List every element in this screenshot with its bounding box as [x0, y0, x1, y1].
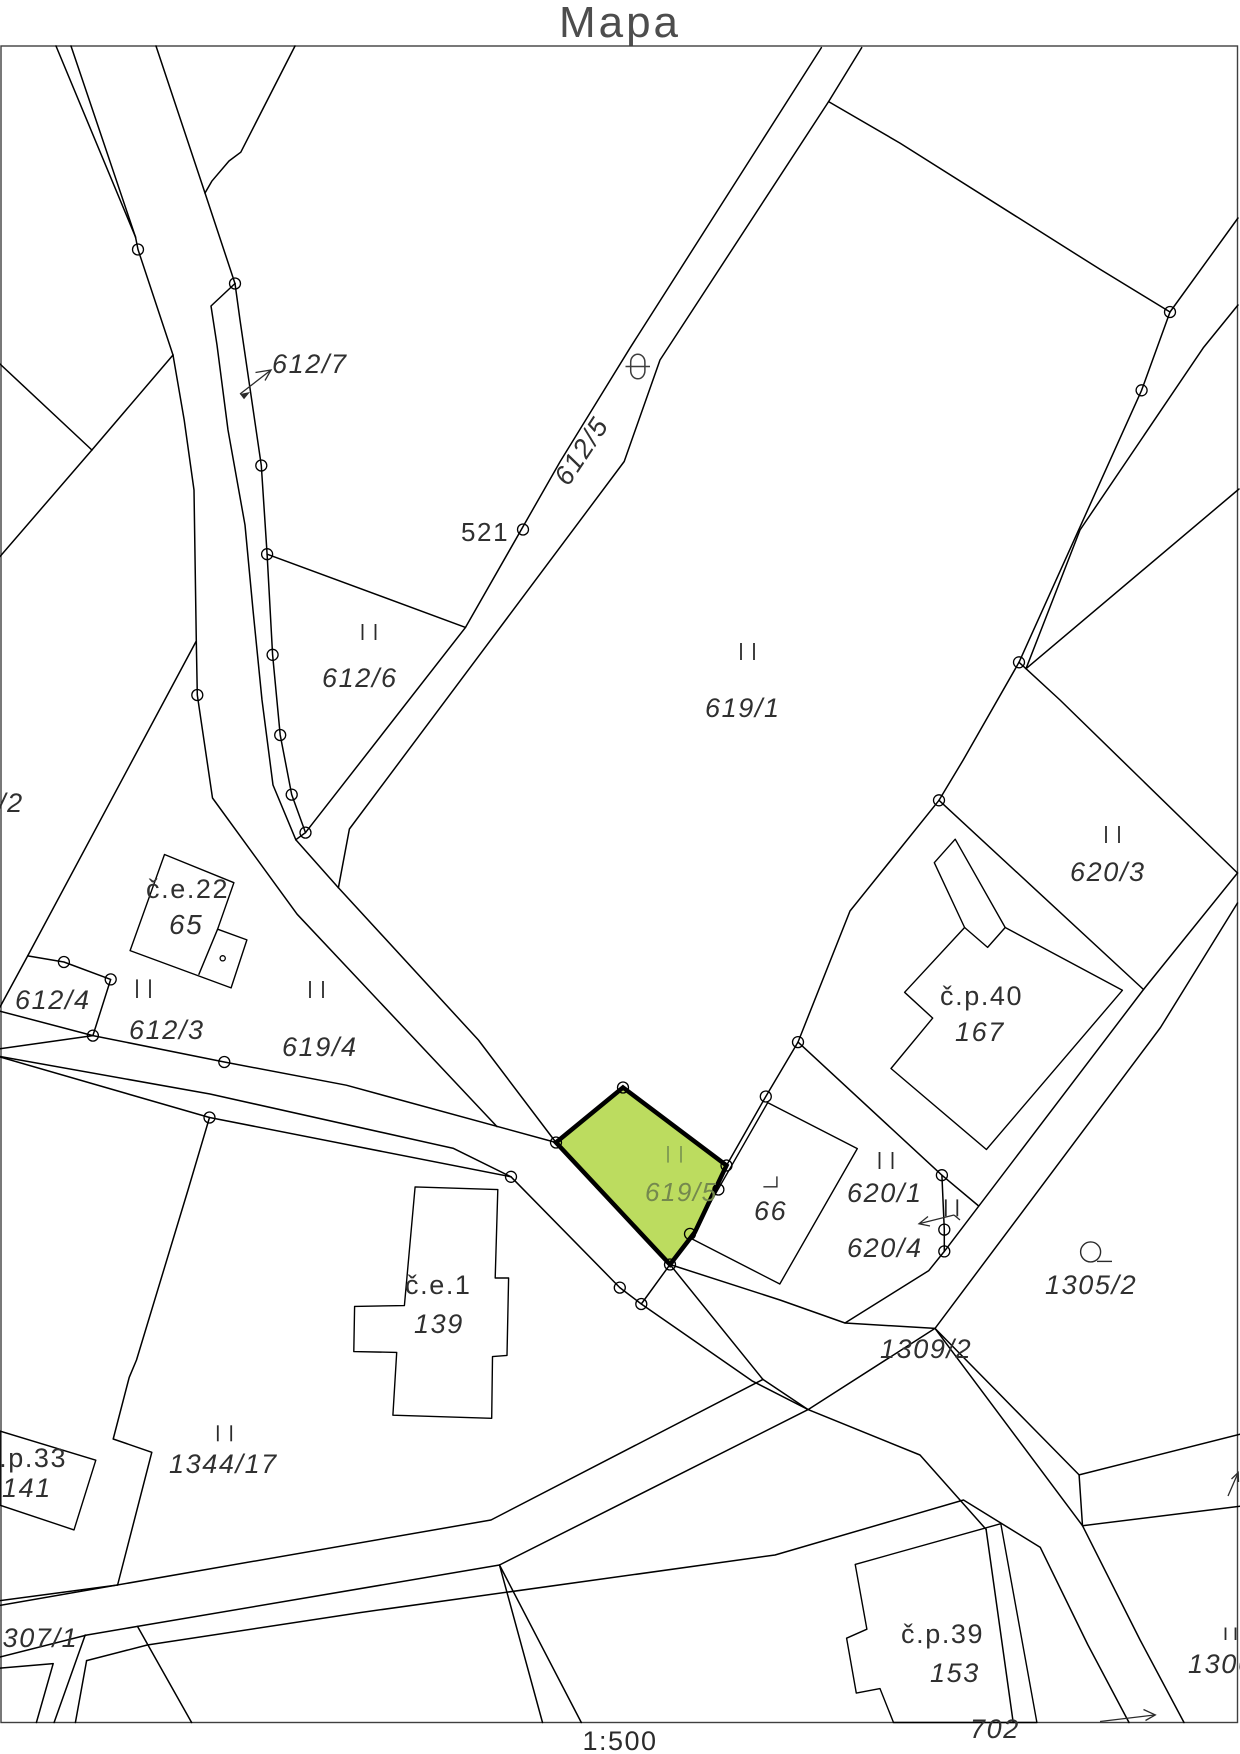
svg-text:619/4: 619/4	[282, 1032, 358, 1062]
svg-text:619/1: 619/1	[705, 693, 781, 723]
svg-text:612/6: 612/6	[322, 663, 398, 693]
svg-text:1306: 1306	[1188, 1649, 1240, 1679]
svg-text:č.e.1: č.e.1	[405, 1270, 472, 1300]
svg-text:č.p.40: č.p.40	[940, 981, 1023, 1011]
svg-text:620/1: 620/1	[847, 1178, 923, 1208]
svg-text:619/5: 619/5	[645, 1177, 718, 1207]
svg-text:/2: /2	[0, 788, 24, 818]
svg-text:620/3: 620/3	[1070, 857, 1146, 887]
svg-text:702: 702	[970, 1714, 1020, 1744]
svg-text:1:500: 1:500	[582, 1726, 657, 1754]
svg-text:153: 153	[930, 1658, 980, 1688]
svg-text:1305/2: 1305/2	[1045, 1270, 1137, 1300]
svg-text:612/3: 612/3	[129, 1015, 205, 1045]
svg-text:141: 141	[2, 1473, 52, 1503]
svg-text:1307/1: 1307/1	[0, 1623, 78, 1653]
svg-text:612/4: 612/4	[15, 985, 91, 1015]
svg-text:č.e.22: č.e.22	[146, 874, 229, 904]
svg-text:521: 521	[461, 517, 509, 547]
svg-text:1309/2: 1309/2	[880, 1334, 972, 1364]
svg-text:Mapa: Mapa	[559, 0, 681, 47]
svg-text:66: 66	[754, 1196, 787, 1226]
svg-text:139: 139	[414, 1309, 464, 1339]
svg-text:612/7: 612/7	[272, 349, 348, 379]
svg-text:65: 65	[169, 909, 203, 940]
svg-text:1344/17: 1344/17	[169, 1449, 278, 1479]
svg-text:620/4: 620/4	[847, 1233, 923, 1263]
svg-text:č.p.39: č.p.39	[901, 1619, 984, 1649]
svg-text:167: 167	[955, 1017, 1005, 1047]
svg-text:č.p.33: č.p.33	[0, 1443, 67, 1473]
